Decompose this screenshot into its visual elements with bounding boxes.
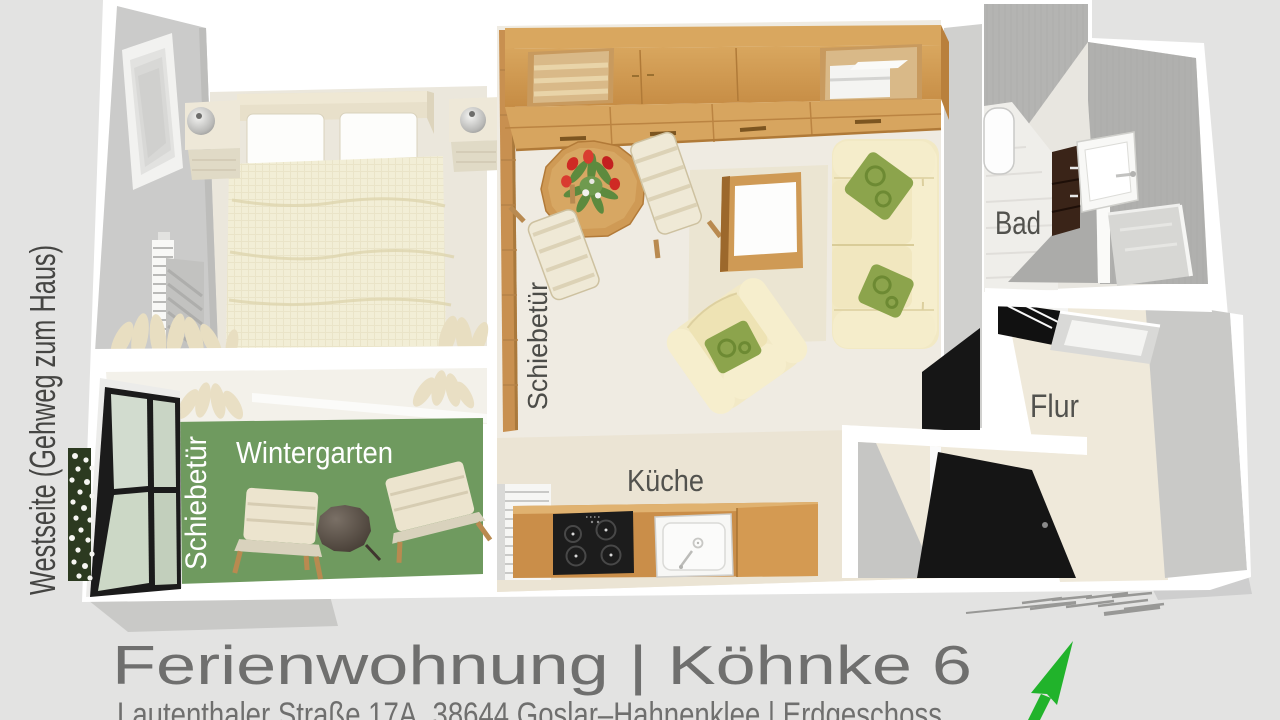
- svg-text:Bad: Bad: [995, 205, 1041, 241]
- svg-text:Ferienwohnung | Köhnke 6: Ferienwohnung | Köhnke 6: [112, 634, 972, 696]
- svg-text:Küche: Küche: [627, 463, 704, 498]
- svg-text:Flur: Flur: [1030, 388, 1079, 424]
- svg-text:Schiebetür: Schiebetür: [180, 436, 213, 570]
- svg-text:Westseite (Gehweg zum Haus): Westseite (Gehweg zum Haus): [22, 245, 63, 595]
- svg-text:Lautenthaler Straße 17A, 38644: Lautenthaler Straße 17A, 38644 Goslar–Ha…: [117, 696, 942, 720]
- svg-text:Wintergarten: Wintergarten: [236, 435, 393, 470]
- svg-text:Schiebetür: Schiebetür: [522, 282, 553, 410]
